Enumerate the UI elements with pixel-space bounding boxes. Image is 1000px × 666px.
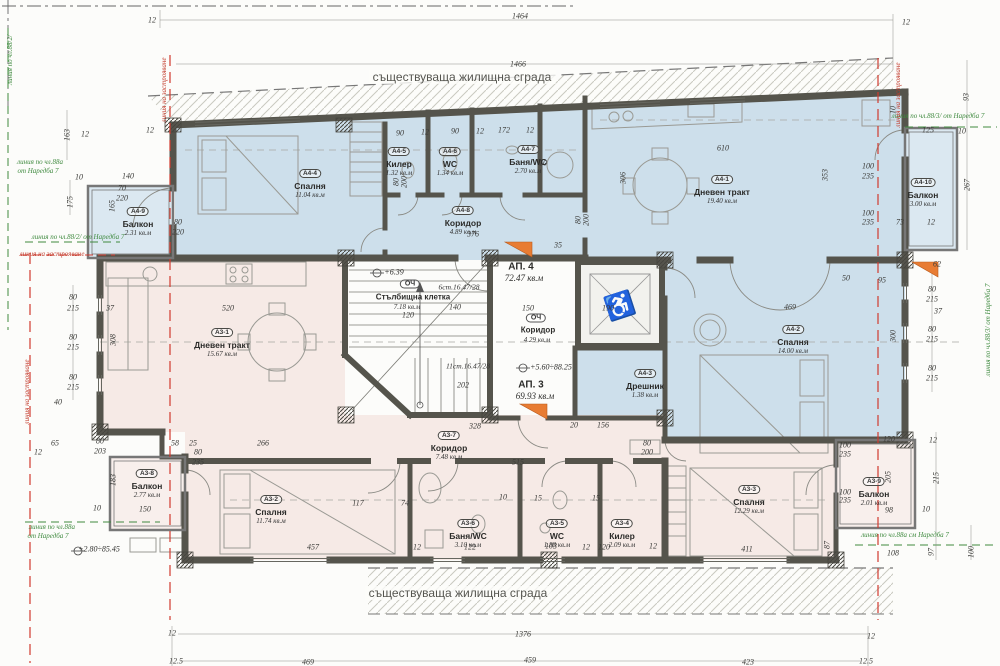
elevator: ♿ [578,262,662,346]
stairs [349,264,487,412]
floor-plan-drawing: ♿ [0,0,1000,666]
floor-plan-canvas: ♿ [0,0,1000,666]
